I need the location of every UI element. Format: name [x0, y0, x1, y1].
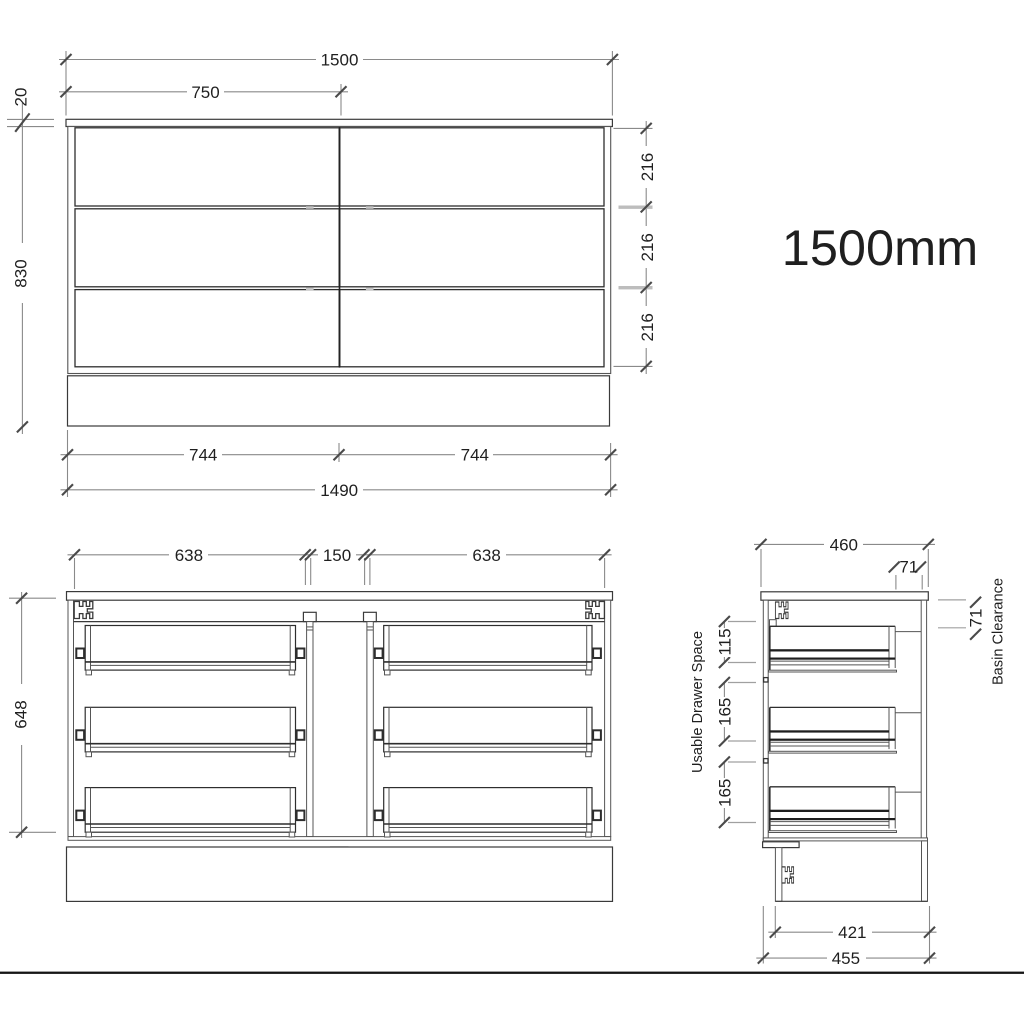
svg-text:115: 115 — [715, 628, 734, 655]
svg-text:421: 421 — [838, 923, 866, 942]
svg-text:71: 71 — [966, 609, 985, 628]
svg-text:648: 648 — [12, 700, 31, 728]
svg-text:216: 216 — [638, 233, 657, 261]
svg-text:638: 638 — [175, 546, 203, 565]
svg-text:165: 165 — [715, 698, 734, 726]
svg-text:1500mm: 1500mm — [782, 219, 978, 276]
svg-text:165: 165 — [715, 779, 734, 807]
svg-text:1500: 1500 — [321, 51, 359, 70]
svg-text:750: 750 — [191, 83, 219, 102]
svg-text:830: 830 — [12, 259, 31, 287]
svg-text:744: 744 — [461, 446, 489, 465]
svg-text:216: 216 — [638, 153, 657, 181]
svg-text:638: 638 — [472, 546, 500, 565]
svg-text:150: 150 — [323, 546, 351, 565]
svg-text:20: 20 — [12, 88, 31, 107]
svg-text:216: 216 — [638, 313, 657, 341]
svg-text:455: 455 — [832, 949, 860, 968]
svg-text:Usable Drawer Space: Usable Drawer Space — [690, 631, 706, 773]
svg-text:71: 71 — [899, 557, 918, 576]
svg-text:Basin Clearance: Basin Clearance — [990, 578, 1006, 685]
svg-text:460: 460 — [830, 535, 858, 554]
svg-text:1490: 1490 — [320, 481, 358, 500]
svg-text:744: 744 — [189, 446, 217, 465]
